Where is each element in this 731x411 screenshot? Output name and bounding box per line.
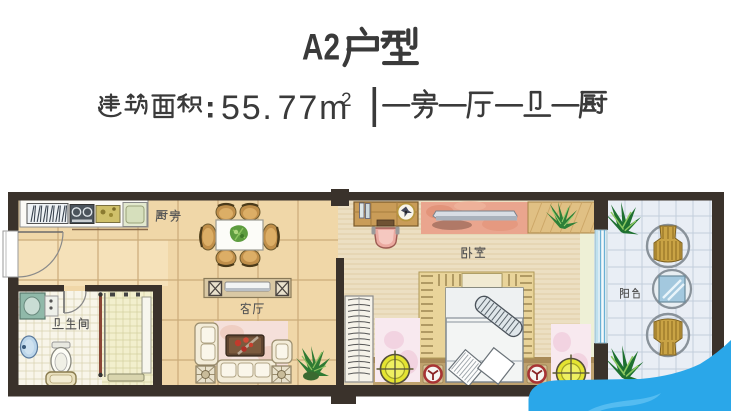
svg-text:55.77m: 55.77m [221,89,349,127]
svg-text:2: 2 [341,90,352,111]
svg-text:A2: A2 [302,27,340,68]
